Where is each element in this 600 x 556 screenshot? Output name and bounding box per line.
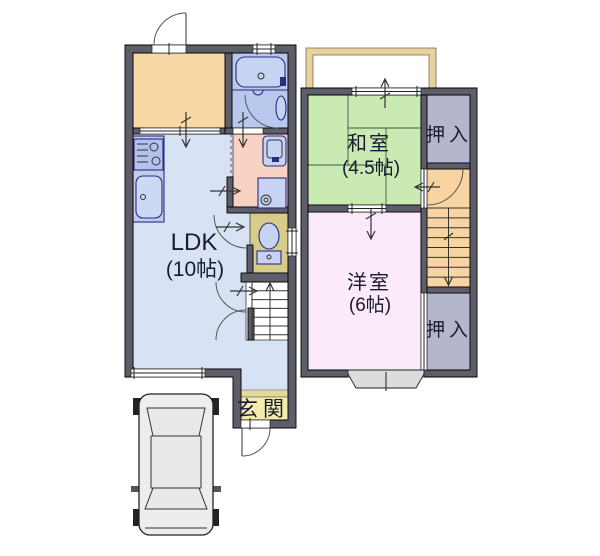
car-windshield	[145, 488, 207, 509]
ldk-label: LDK	[171, 229, 218, 256]
washitsu-size-label: (4.5帖)	[342, 157, 400, 179]
genkan-label: 玄関	[237, 398, 289, 421]
washitsu-label: 和室	[347, 132, 391, 155]
oshiire-top-label: 押入	[426, 124, 472, 146]
bath-door-opening	[233, 128, 263, 134]
car-roof	[151, 436, 201, 488]
ldk-size-label: (10帖)	[166, 258, 224, 281]
washing-machine-pan-icon	[258, 178, 286, 208]
toilet-icon	[257, 223, 281, 264]
floorplan-canvas: LDK (10帖) 玄関	[0, 0, 600, 556]
service-room	[133, 53, 225, 128]
floorplan-svg: LDK (10帖) 玄関	[0, 0, 600, 556]
balcony	[306, 48, 436, 88]
genkan-step	[241, 390, 288, 397]
door-arc	[154, 13, 186, 45]
first-floor-plan: LDK (10帖) 玄関	[125, 13, 298, 456]
second-floor-plan: 和室 (4.5帖) 押入 洋室 (6帖) 押入	[301, 48, 477, 391]
vanity-sink-icon	[263, 136, 286, 166]
car-rear-window	[147, 408, 205, 436]
parking-car	[131, 394, 221, 535]
kitchen-counter	[133, 136, 164, 222]
entrance-door-arc	[242, 428, 270, 456]
oshiire-bottom-label: 押入	[426, 319, 472, 341]
yoshitsu-label: 洋室	[347, 271, 391, 294]
kitchen-sink-icon	[136, 176, 162, 218]
entrance-door-opening	[241, 420, 270, 428]
yoshitsu-size-label: (6帖)	[349, 294, 391, 316]
